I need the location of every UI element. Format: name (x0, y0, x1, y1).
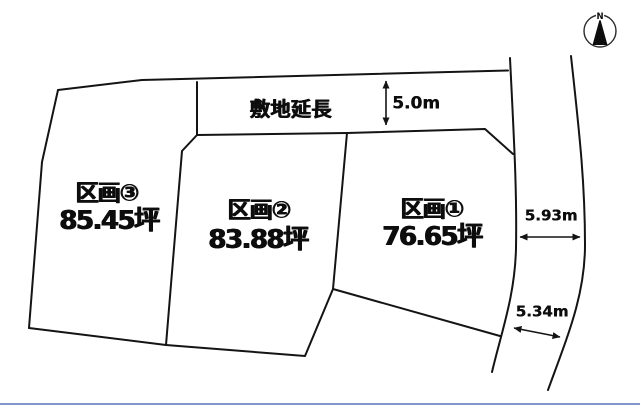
strip-label: 敷地延長 (250, 99, 332, 119)
plot3-area-label: 85.45坪 (59, 208, 158, 234)
compass: N (584, 12, 616, 47)
strip-bottom-boundary (197, 129, 513, 154)
plot1-name-label: 区画① (401, 199, 463, 222)
land-plot-diagram: N 敷地延長 5.0m 区画① 76.65坪 区画② 83.88坪 区画③ 85… (0, 0, 640, 408)
road-west-edge (492, 58, 516, 372)
parcel-left-boundary (29, 90, 58, 328)
road-upper-width-label: 5.93m (525, 209, 578, 224)
bottom-rule-divider (0, 403, 640, 405)
parcel-bottom-boundary (29, 289, 500, 356)
road-lower-width-label: 5.34m (516, 305, 569, 320)
plot2-name-label: 区画② (228, 200, 290, 223)
plot1-area-label: 76.65坪 (382, 224, 481, 250)
parcel-top-boundary (58, 71, 508, 91)
compass-north-label: N (596, 12, 603, 22)
road-lower-width-arrow (514, 328, 560, 337)
plot2-plot1-divider (333, 133, 347, 289)
plot3-plot2-divider (166, 135, 197, 345)
plot3-name-label: 区画③ (76, 183, 138, 206)
plot2-area-label: 83.88坪 (208, 227, 307, 253)
strip-width-label: 5.0m (392, 96, 440, 113)
